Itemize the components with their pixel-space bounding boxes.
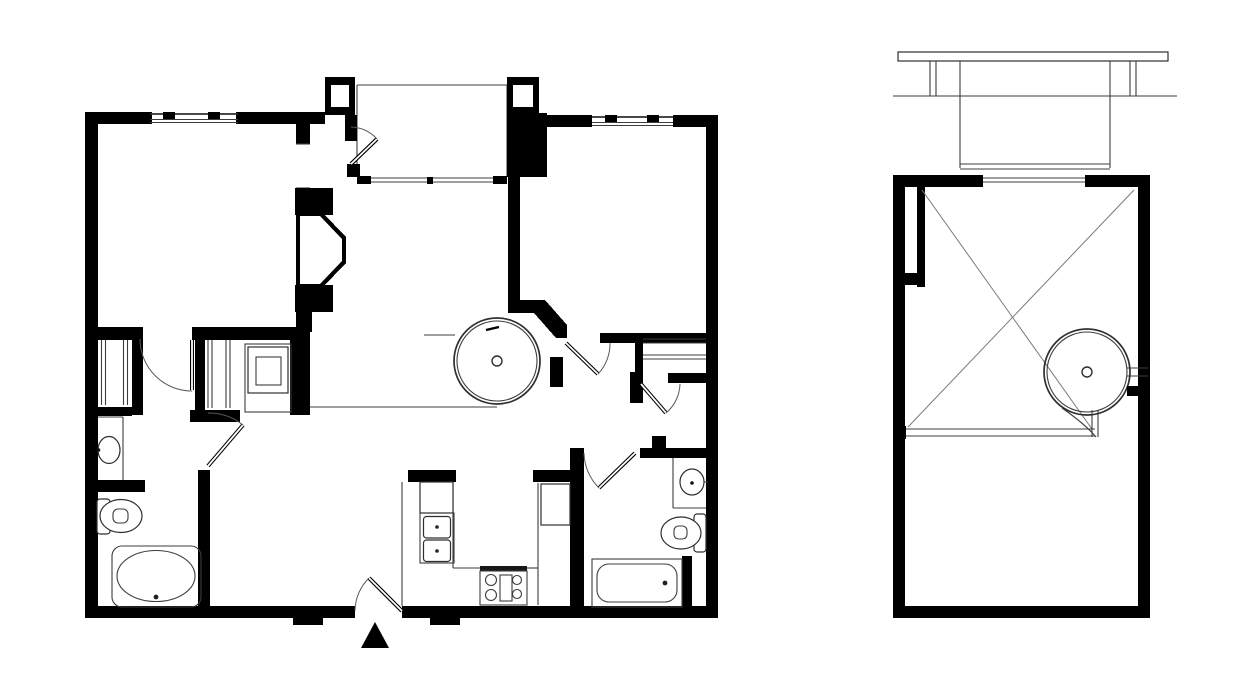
- open-to-below: [908, 190, 1134, 429]
- master-bedroom-door-swing: [140, 339, 192, 391]
- master-bath-sink: [97, 437, 120, 464]
- entry-door-swing: [355, 578, 402, 611]
- master-bedroom-window: [150, 112, 238, 123]
- entry-arrow-icon: [361, 622, 389, 648]
- master-bath-toilet: [97, 499, 142, 534]
- main-floor-plan: [85, 77, 718, 648]
- bath-sink: [680, 469, 708, 495]
- stove: [480, 566, 527, 605]
- kitchen-cabinet: [541, 484, 570, 525]
- bathroom-door-swing: [584, 453, 635, 488]
- floor-plan-page: [0, 0, 1240, 676]
- loft-plan: [893, 52, 1177, 618]
- bedroom-door-swing: [566, 343, 610, 374]
- interior-walls: [85, 124, 706, 606]
- kitchen: [402, 482, 570, 606]
- kitchen-sink: [420, 513, 454, 563]
- refrigerator: [420, 482, 453, 513]
- bedroom-window: [592, 115, 673, 126]
- garden-tub: [112, 546, 201, 607]
- bathtub: [592, 559, 682, 607]
- loft-walls: [893, 175, 1150, 618]
- closet-door-swing: [641, 384, 680, 413]
- bath-toilet: [661, 514, 706, 552]
- spiral-staircase-main: [310, 318, 540, 407]
- angled-wall: [508, 300, 567, 338]
- roof-deck-structure: [893, 52, 1177, 169]
- doors: [140, 127, 680, 611]
- floor-plan-drawing: [0, 0, 1240, 676]
- loft-railing: [900, 410, 1098, 439]
- master-bathroom: [97, 417, 201, 607]
- washer-dryer: [245, 344, 291, 412]
